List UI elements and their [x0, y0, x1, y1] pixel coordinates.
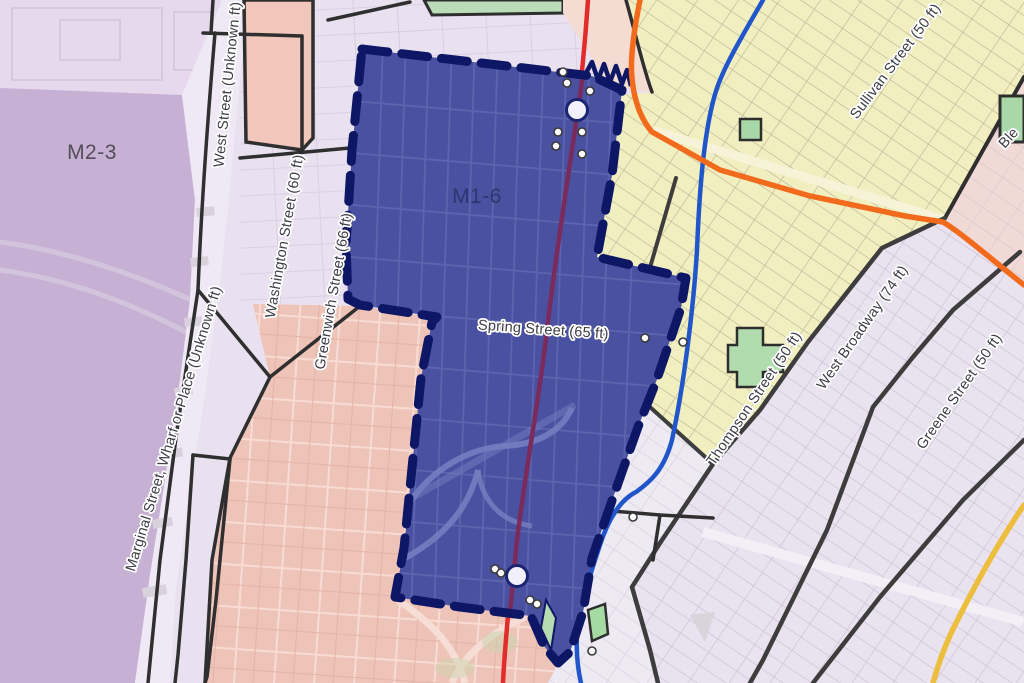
map-canvas[interactable]: M2-3 M1-6 West Street (Unknown ft) Washi…	[0, 0, 1024, 683]
park-square	[740, 119, 761, 140]
district-label-m2-3: M2-3	[67, 141, 117, 164]
park-trapezoid	[588, 604, 608, 641]
station-marker[interactable]	[507, 566, 528, 587]
station-marker[interactable]	[567, 100, 588, 121]
park-strip-top	[424, 0, 563, 15]
zoning-map: M2-3 M1-6 West Street (Unknown ft) Washi…	[0, 0, 1024, 683]
district-label-m1-6: M1-6	[452, 185, 502, 208]
